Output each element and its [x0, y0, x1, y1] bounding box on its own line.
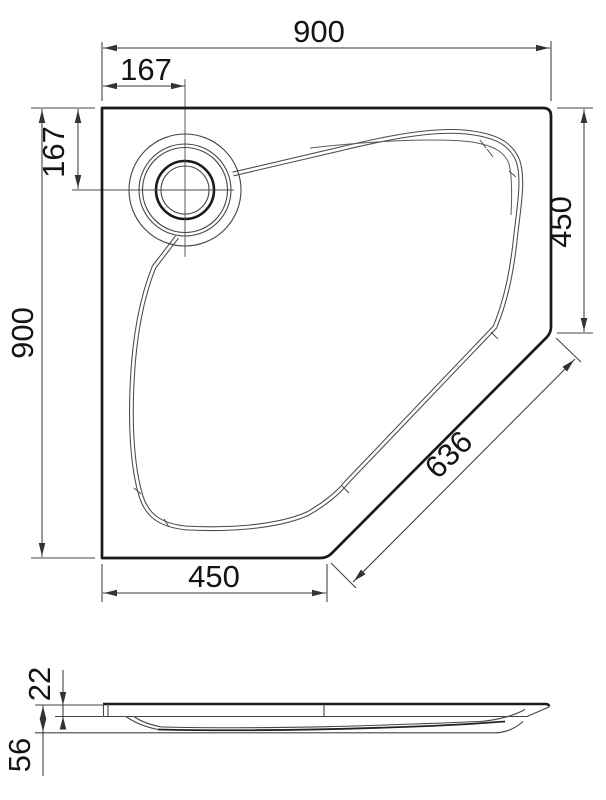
dim-overall-height: 56	[2, 705, 46, 776]
arrowhead	[60, 692, 67, 705]
profile-top-surface	[103, 704, 549, 707]
arrowhead	[581, 110, 588, 123]
arrowhead	[75, 110, 82, 123]
arrowhead	[39, 543, 46, 556]
arrowhead	[104, 590, 117, 597]
plan-view: 900 167 900 167	[5, 14, 593, 602]
contour-break-tick	[491, 332, 498, 339]
dim-bottom-side: 450	[102, 559, 327, 602]
basin-contour-inner-stroke	[131, 131, 520, 528]
dim-label-right-side: 450	[543, 196, 578, 248]
dim-label-drain-offset-y: 167	[36, 126, 71, 178]
profile-right-chamfer	[527, 707, 549, 717]
dim-label-rim-thickness: 22	[22, 667, 57, 701]
dim-label-bottom-side: 450	[188, 559, 240, 594]
dim-rim-thickness: 22	[22, 667, 103, 730]
arrowhead	[104, 45, 117, 52]
arrowhead	[312, 590, 325, 597]
arrowhead	[536, 45, 549, 52]
contour-break-tick	[509, 171, 516, 177]
profile-recess-curve-inner	[134, 717, 162, 728]
contour-break-tick	[487, 149, 493, 157]
dim-label-diagonal: 636	[418, 424, 479, 485]
extension-line	[331, 563, 356, 588]
arrowhead	[39, 110, 46, 123]
dim-drain-offset-x: 167	[103, 52, 185, 89]
basin-inner-contour	[131, 131, 520, 528]
drawing-canvas: 900 167 900 167	[0, 0, 606, 800]
basin-contour-outer-stroke	[131, 131, 520, 528]
profile-recess-curve-outer	[126, 717, 158, 730]
extension-line	[556, 338, 581, 362]
arrowhead	[75, 175, 82, 188]
arrowhead	[40, 719, 47, 732]
arrowhead	[104, 83, 117, 90]
dimension-line	[353, 359, 575, 582]
dim-label-top-width: 900	[293, 14, 345, 49]
tray-profile	[35, 704, 549, 733]
dim-label-left-height: 900	[5, 307, 40, 359]
profile-underside-slope	[162, 710, 525, 728]
arrowhead	[581, 318, 588, 331]
tray-outline	[102, 108, 551, 558]
dim-label-overall-height: 56	[2, 738, 37, 772]
dim-label-drain-offset-x: 167	[120, 52, 172, 87]
dim-diagonal: 636	[331, 338, 581, 588]
drain	[72, 79, 241, 257]
arrowhead	[60, 717, 67, 730]
side-view: 22 56	[2, 667, 549, 776]
arrowhead	[40, 706, 47, 719]
arrowhead	[171, 83, 184, 90]
technical-drawing: 900 167 900 167	[0, 0, 606, 800]
